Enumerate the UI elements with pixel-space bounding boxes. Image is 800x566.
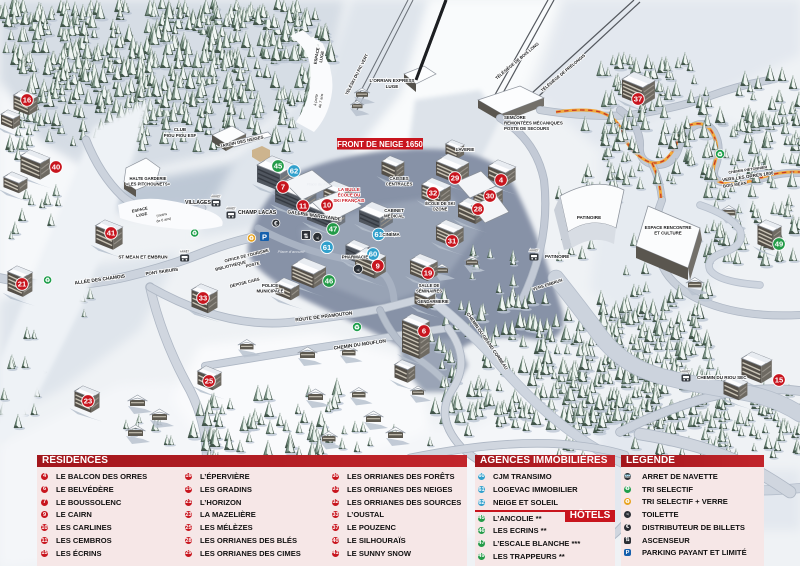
- svg-text:CHEMIN DU RIOU SEC: CHEMIN DU RIOU SEC: [697, 375, 747, 380]
- svg-text:33: 33: [199, 294, 207, 303]
- svg-text:29: 29: [451, 174, 459, 183]
- svg-text:45: 45: [274, 162, 283, 171]
- svg-text:62: 62: [290, 167, 298, 176]
- svg-text:37: 37: [634, 95, 642, 104]
- svg-text:CABINET: CABINET: [384, 208, 404, 213]
- svg-text:REMONTÉES MÉCANIQUES: REMONTÉES MÉCANIQUES: [504, 121, 563, 126]
- svg-text:PATINOIRE: PATINOIRE: [545, 254, 569, 259]
- svg-text:⇅: ⇅: [303, 233, 308, 240]
- svg-text:Place d’accueil: Place d’accueil: [278, 249, 305, 254]
- svg-text:♃: ♃: [315, 235, 320, 242]
- svg-text:LAVERIE: LAVERIE: [456, 147, 475, 152]
- svg-text:6: 6: [422, 327, 426, 336]
- svg-text:LUGE: LUGE: [386, 84, 399, 89]
- svg-text:POLICE: POLICE: [262, 283, 278, 288]
- svg-text:30: 30: [486, 192, 494, 201]
- svg-text:SKI FRANÇAIS: SKI FRANÇAIS: [333, 198, 364, 203]
- svg-text:P: P: [262, 233, 267, 242]
- svg-text:PHARMACIE: PHARMACIE: [342, 255, 369, 260]
- svg-text:HALTE GARDERIE: HALTE GARDERIE: [130, 176, 167, 181]
- svg-text:CENTRALES: CENTRALES: [386, 182, 413, 187]
- svg-text:POSTE DE SECOURS: POSTE DE SECOURS: [504, 126, 549, 131]
- svg-text:PIOU PIOU ESF: PIOU PIOU ESF: [164, 133, 197, 138]
- svg-text:ÉCOLE DU: ÉCOLE DU: [338, 193, 361, 198]
- svg-text:GENDARMERIE: GENDARMERIE: [417, 299, 449, 304]
- svg-text:VILLAGES: VILLAGES: [185, 200, 211, 206]
- svg-text:♻: ♻: [717, 150, 723, 158]
- svg-text:25: 25: [205, 377, 214, 386]
- svg-text:L’ORRIAN EXPRESS: L’ORRIAN EXPRESS: [370, 78, 415, 83]
- svg-text:SÉMINAIRES: SÉMINAIRES: [416, 289, 442, 294]
- svg-text:ARRÊT: ARRÊT: [211, 194, 221, 199]
- svg-text:CHAMP LACAS: CHAMP LACAS: [238, 210, 277, 216]
- svg-text:SEMLORE: SEMLORE: [504, 115, 526, 120]
- svg-text:9: 9: [376, 261, 380, 270]
- svg-text:23: 23: [84, 397, 92, 406]
- svg-text:40: 40: [52, 163, 60, 172]
- svg-text:ST MEAN ET EMBRUN: ST MEAN ET EMBRUN: [118, 255, 168, 260]
- svg-text:ÉCOLE DE SKI: ÉCOLE DE SKI: [425, 201, 455, 206]
- svg-text:47: 47: [329, 225, 337, 234]
- svg-text:PATINOIRE: PATINOIRE: [577, 215, 601, 220]
- svg-text:«LES PITCHOUNETS»: «LES PITCHOUNETS»: [126, 182, 171, 187]
- svg-text:♻: ♻: [45, 277, 51, 284]
- svg-text:31: 31: [448, 237, 457, 246]
- svg-text:ARRÊT: ARRÊT: [529, 248, 539, 253]
- svg-text:41: 41: [107, 229, 116, 238]
- svg-text:46: 46: [325, 277, 333, 286]
- svg-text:♻: ♻: [192, 230, 198, 237]
- svg-text:28: 28: [474, 205, 482, 214]
- svg-text:49: 49: [775, 240, 783, 249]
- svg-text:7: 7: [281, 183, 285, 192]
- svg-text:FRONT DE NEIGE 1650: FRONT DE NEIGE 1650: [337, 140, 423, 149]
- svg-text:15: 15: [775, 376, 784, 385]
- svg-text:♻: ♻: [249, 235, 255, 242]
- svg-text:CAISSES: CAISSES: [389, 176, 408, 181]
- svg-text:11: 11: [299, 202, 308, 211]
- svg-text:60: 60: [369, 250, 377, 259]
- svg-text:CINÉMA: CINÉMA: [382, 232, 400, 237]
- svg-text:Place du Festival: Place du Festival: [307, 182, 338, 187]
- svg-text:ARRÊT: ARRÊT: [180, 249, 190, 254]
- svg-text:♻: ♻: [354, 323, 360, 331]
- svg-text:ESPACE RENCONTRE: ESPACE RENCONTRE: [645, 225, 692, 230]
- svg-text:MÉDICAL: MÉDICAL: [384, 214, 404, 219]
- svg-text:16: 16: [23, 96, 31, 105]
- svg-text:OZONE: OZONE: [433, 207, 448, 212]
- svg-text:21: 21: [18, 280, 27, 289]
- svg-text:10: 10: [323, 201, 331, 210]
- svg-text:CLUB: CLUB: [174, 127, 186, 132]
- svg-text:32: 32: [429, 189, 437, 198]
- svg-text:LA BULLE: LA BULLE: [338, 187, 360, 192]
- svg-text:ARRÊT: ARRÊT: [681, 369, 691, 374]
- svg-text:MUNICIPALE: MUNICIPALE: [257, 289, 284, 294]
- svg-text:ARRÊT: ARRÊT: [226, 206, 236, 211]
- svg-text:€: €: [274, 221, 278, 228]
- svg-text:61: 61: [323, 243, 332, 252]
- svg-text:19: 19: [424, 269, 432, 278]
- svg-text:♃: ♃: [356, 267, 361, 274]
- svg-text:ET CULTURE: ET CULTURE: [654, 231, 682, 236]
- svg-text:SALLE DE: SALLE DE: [419, 283, 440, 288]
